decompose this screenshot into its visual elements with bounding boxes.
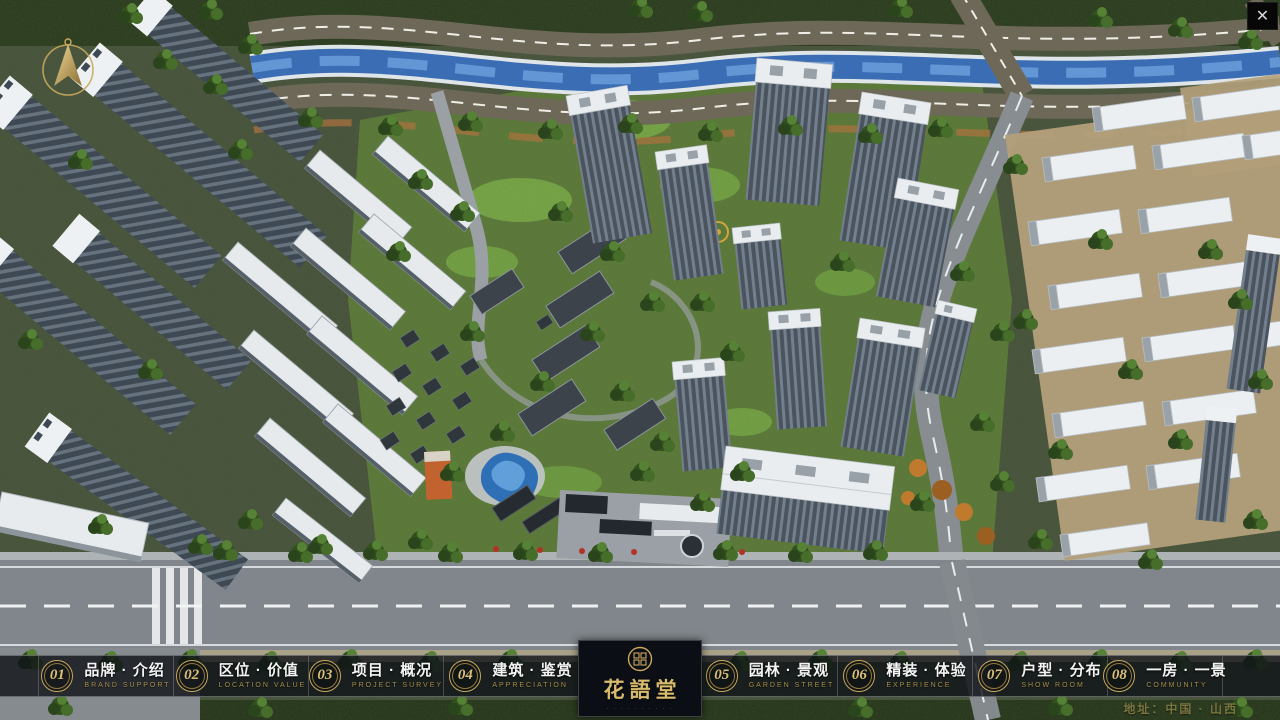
nav-item-interior[interactable]: 06 精装 · 体验EXPERIENCE — [838, 656, 973, 696]
nav-item-garden[interactable]: 05 园林 · 景观GARDEN STREET — [703, 656, 838, 696]
nav-edge-spacer — [0, 656, 39, 696]
logo-tagline: · · · · · · · · · · — [606, 707, 673, 712]
nav-badge-06: 06 — [843, 660, 875, 692]
logo-home-button[interactable]: 花語堂 · · · · · · · · · · — [578, 640, 702, 717]
project-logo-title: 花語堂 — [599, 674, 682, 704]
compass-north-icon — [36, 24, 100, 104]
project-address: 地址：中国 · 山西 — [1123, 700, 1238, 717]
nav-item-views[interactable]: 08 一房 · 一景COMMUNITY — [1108, 656, 1223, 696]
nav-badge-02: 02 — [176, 660, 208, 692]
nav-badge-03: 03 — [309, 660, 341, 692]
nav-badge-04: 04 — [449, 660, 481, 692]
nav-item-brand[interactable]: 01 品牌 · 介绍BRAND SUPPORT — [39, 656, 174, 696]
close-button[interactable]: ✕ — [1247, 2, 1278, 30]
nav-item-floorplans[interactable]: 07 户型 · 分布SHOW ROOM — [973, 656, 1108, 696]
brand-seal-icon — [627, 646, 653, 672]
nav-badge-01: 01 — [41, 660, 73, 692]
nav-edge-spacer-right — [1223, 656, 1280, 696]
nav-badge-07: 07 — [978, 660, 1010, 692]
sales-kiosk-screen: ✕ 01 品牌 · 介绍BRAND SUPPORT 02 区位 · 价值LOCA… — [0, 0, 1280, 720]
nav-item-architecture[interactable]: 04 建筑 · 鉴赏APPRECIATION — [444, 656, 579, 696]
nav-badge-05: 05 — [706, 660, 738, 692]
right-rows — [1005, 73, 1280, 561]
nav-badge-08: 08 — [1103, 660, 1135, 692]
nav-item-project[interactable]: 03 项目 · 概况PROJECT SURVEY — [309, 656, 444, 696]
site-aerial-render[interactable] — [0, 0, 1280, 720]
nav-item-location[interactable]: 02 区位 · 价值LOCATION VALUE — [174, 656, 309, 696]
